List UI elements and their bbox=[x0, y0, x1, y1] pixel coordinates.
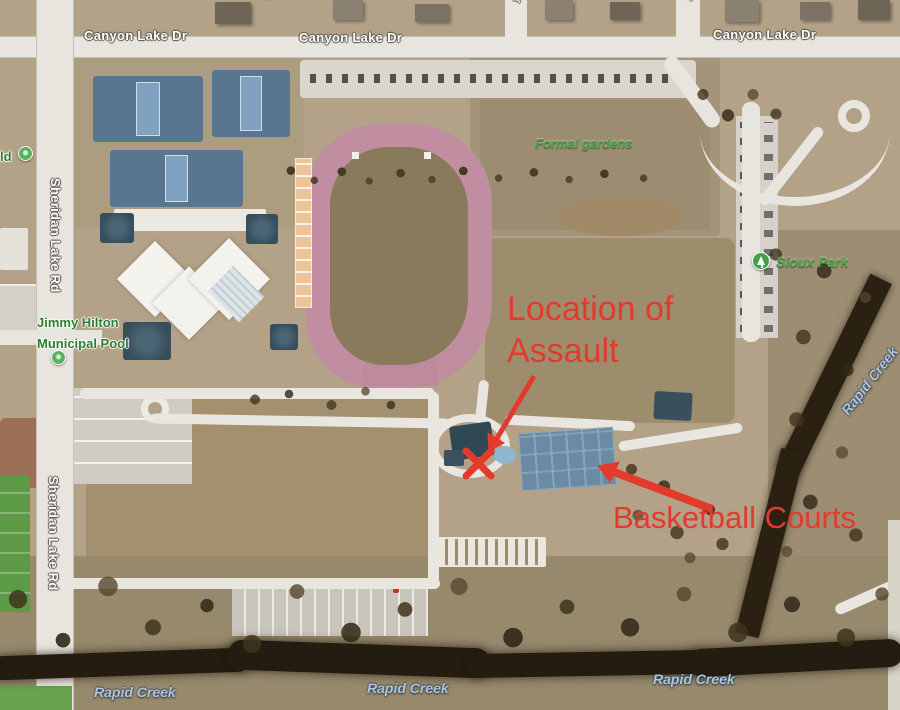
tree-icon bbox=[761, 264, 763, 268]
label-rapid-creek-3: Rapid Creek bbox=[653, 671, 735, 687]
side-street bbox=[676, 0, 700, 44]
road-label-canyon-lake-dr-1: Canyon Lake Dr bbox=[84, 28, 187, 43]
road-label-dr-partial-1: Dr bbox=[510, 0, 525, 3]
label-rapid-creek-2: Rapid Creek bbox=[367, 680, 449, 696]
edge-road bbox=[888, 520, 900, 710]
building bbox=[0, 228, 28, 270]
building bbox=[415, 4, 449, 22]
building bbox=[800, 2, 830, 20]
tennis-court bbox=[136, 82, 160, 136]
road-label-dr-partial-2: Dr bbox=[682, 0, 697, 1]
pavilion-roof bbox=[123, 322, 171, 360]
label-jimmy-hilton-pool: Jimmy Hilton Municipal Pool bbox=[37, 312, 129, 354]
road-label-canyon-lake-dr-3: Canyon Lake Dr bbox=[713, 27, 816, 42]
soccer-field bbox=[0, 476, 30, 612]
building bbox=[610, 2, 640, 20]
tennis-court bbox=[240, 76, 262, 131]
field-place-marker[interactable] bbox=[18, 146, 33, 161]
label-field-partial: ld bbox=[0, 146, 12, 167]
building bbox=[215, 2, 251, 24]
building bbox=[333, 0, 363, 20]
road-label-canyon-lake-dr-2: Canyon Lake Dr bbox=[299, 30, 402, 45]
walking-path bbox=[618, 422, 743, 451]
garden-path-circle bbox=[838, 100, 870, 132]
pavilion-roof bbox=[246, 214, 278, 244]
terrain-patch bbox=[485, 238, 735, 423]
pavilion-east bbox=[653, 391, 692, 421]
walking-path bbox=[58, 578, 440, 589]
tennis-courts-bank bbox=[110, 150, 243, 207]
soccer-field bbox=[0, 686, 72, 710]
annotation-location-of: Location of bbox=[507, 290, 673, 329]
pool-label-line1: Jimmy Hilton bbox=[37, 312, 129, 333]
pavilion-roof bbox=[270, 324, 298, 350]
pool-label-line2: Municipal Pool bbox=[37, 333, 129, 354]
side-street bbox=[505, 0, 527, 40]
curved-path bbox=[700, 56, 890, 206]
label-rapid-creek-1: Rapid Creek bbox=[94, 684, 176, 700]
parking-lot-north bbox=[300, 60, 696, 98]
annotation-assault: Assault bbox=[507, 332, 619, 371]
sioux-park-marker[interactable] bbox=[752, 252, 770, 270]
building bbox=[545, 0, 573, 20]
basketball-court bbox=[518, 427, 617, 491]
field-marking bbox=[352, 152, 359, 159]
clubhouse-building bbox=[114, 209, 266, 231]
building bbox=[725, 0, 759, 22]
parking-lot-midwest bbox=[74, 388, 192, 484]
field-marking bbox=[424, 152, 431, 159]
tennis-courts-bank bbox=[93, 76, 203, 142]
dirt-patch bbox=[555, 196, 685, 236]
tennis-court bbox=[165, 155, 188, 202]
parking-lot-south bbox=[232, 588, 428, 636]
bleachers bbox=[295, 158, 312, 308]
satellite-map-canvas[interactable]: Canyon Lake Dr Canyon Lake Dr Canyon Lak… bbox=[0, 0, 900, 710]
pool-place-marker[interactable] bbox=[51, 350, 66, 365]
tennis-courts-bank bbox=[212, 70, 290, 137]
pavilion-roof bbox=[100, 213, 134, 243]
parked-cars-row bbox=[310, 74, 686, 83]
label-sioux-park: Sioux Park bbox=[776, 254, 848, 270]
splash-pad bbox=[494, 446, 516, 464]
pavilion-annex bbox=[444, 450, 464, 466]
building bbox=[858, 0, 890, 20]
road-label-sheridan-lake-rd-1: Sheridan Lake Rd bbox=[48, 178, 63, 293]
track-infield bbox=[330, 147, 468, 365]
label-formal-gardens: Formal gardens bbox=[535, 136, 633, 151]
garden-plots bbox=[436, 537, 546, 567]
walking-path bbox=[80, 388, 435, 399]
annotation-basketball-courts: Basketball Courts bbox=[613, 500, 856, 536]
road-label-sheridan-lake-rd-2: Sheridan Lake Rd bbox=[46, 476, 61, 591]
